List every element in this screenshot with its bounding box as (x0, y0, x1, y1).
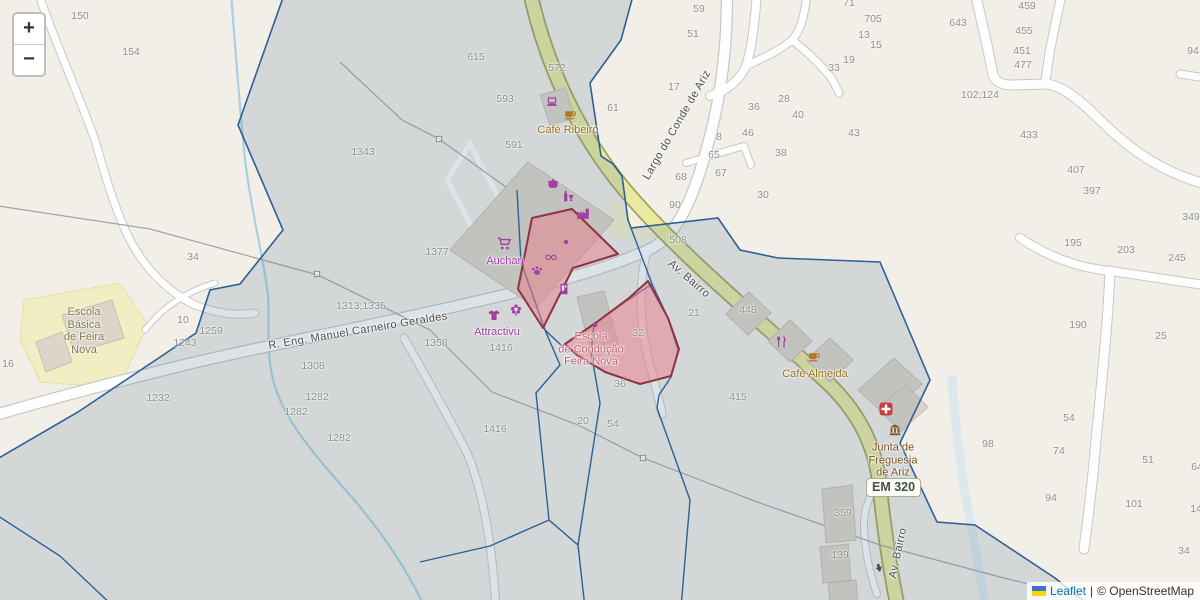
house-number: 1313;1335 (336, 300, 386, 312)
house-number: 705 (864, 13, 882, 25)
house-number: 349 (1182, 211, 1200, 223)
house-number: 25 (1155, 330, 1167, 342)
house-number: 1282 (327, 432, 350, 444)
cart-icon (497, 236, 512, 251)
house-number: 21 (688, 307, 700, 319)
glasses-icon (545, 251, 558, 264)
poi-label: Café Almeida (782, 368, 847, 381)
house-number: 459 (1018, 0, 1036, 12)
vending-icon (558, 283, 571, 296)
house-number: 1243 (173, 337, 196, 349)
house-number: 54 (607, 418, 619, 430)
pylon-icon (313, 270, 322, 279)
poi-label: Escolade ConduçãoFeira Nova (558, 330, 623, 368)
house-number: 1416 (483, 423, 506, 435)
house-number: 451 (1013, 45, 1031, 57)
house-number: 51 (1142, 454, 1154, 466)
dot-icon (591, 321, 599, 329)
house-number: 455 (1015, 25, 1033, 37)
tshirt-icon (488, 309, 501, 322)
pylon-icon (639, 454, 648, 463)
house-number: 245 (1168, 252, 1186, 264)
house-number: 477 (1014, 59, 1032, 71)
route-shield: EM 320 (866, 478, 921, 497)
house-number: 593 (496, 93, 514, 105)
house-number: 10 (177, 314, 189, 326)
house-number: 90 (669, 199, 681, 211)
house-number: 98 (982, 438, 994, 450)
osm-attribution-link[interactable]: © OpenStreetMap (1097, 584, 1194, 598)
pot-icon (547, 177, 560, 190)
house-number: 397 (1083, 185, 1101, 197)
ukraine-flag-icon (1032, 586, 1046, 596)
house-number: 1282 (284, 406, 307, 418)
house-number: 13 (858, 29, 870, 41)
house-number: 34 (187, 251, 199, 263)
house-number: 32 (632, 327, 644, 339)
arrow-icon (872, 561, 885, 574)
medical-icon (879, 402, 894, 417)
poi-label: EscolaBásicade FeiraNova (64, 306, 104, 356)
flower-icon (509, 303, 523, 317)
house-number: 65 (708, 149, 720, 161)
house-number: 64 (1191, 461, 1200, 473)
poi-label: Junta deFreguesiade Ariz (869, 441, 918, 479)
house-number: 59 (693, 3, 705, 15)
house-number: 203 (1117, 244, 1135, 256)
house-number: 154 (122, 46, 140, 58)
townhall-icon (889, 424, 902, 437)
house-number: 40 (792, 109, 804, 121)
house-number: 68 (675, 171, 687, 183)
poi-label: Café Ribeiro (537, 124, 598, 137)
house-number: 1308 (301, 360, 324, 372)
house-number: 615 (467, 51, 485, 63)
house-number: 407 (1067, 164, 1085, 176)
pylon-icon (435, 135, 444, 144)
house-number: 1377 (425, 246, 448, 258)
house-number: 1259 (199, 325, 222, 337)
labels-layer: 1501541343346155725935916117595171705131… (0, 0, 1200, 600)
laptop-icon (546, 96, 559, 109)
attribution-separator: | (1090, 584, 1093, 598)
house-number: 15 (870, 39, 882, 51)
house-number: 190 (1069, 319, 1087, 331)
house-number: 1343 (351, 146, 374, 158)
house-number: 54 (1063, 412, 1075, 424)
house-number: 71 (843, 0, 855, 9)
house-number: 34 (1178, 545, 1190, 557)
house-number: 141 (1190, 503, 1200, 515)
house-number: 1232 (146, 392, 169, 404)
leaflet-link[interactable]: Leaflet (1050, 584, 1086, 598)
street-label: Av. Bairro (666, 258, 713, 301)
house-number: 195 (1064, 237, 1082, 249)
drinks-icon (562, 190, 575, 203)
zoom-control: + − (12, 12, 46, 77)
house-number: 591 (505, 139, 523, 151)
house-number: 643 (949, 17, 967, 29)
house-number: 508 (669, 234, 687, 246)
house-number: 61 (607, 102, 619, 114)
house-number: 51 (687, 28, 699, 40)
zoom-in-button[interactable]: + (14, 14, 44, 45)
house-number: 139 (831, 549, 849, 561)
house-number: 67 (715, 167, 727, 179)
house-number: 150 (71, 10, 89, 22)
factory-icon (576, 206, 590, 220)
coffee-icon (564, 108, 577, 121)
paw-icon (531, 264, 544, 277)
map-canvas[interactable]: 1501541343346155725935916117595171705131… (0, 0, 1200, 600)
house-number: 17 (668, 81, 680, 93)
house-number: 36 (614, 378, 626, 390)
house-number: 359 (834, 507, 852, 519)
house-number: 415 (729, 391, 747, 403)
dot-icon (562, 238, 570, 246)
house-number: 8 (716, 131, 722, 143)
house-number: 102;124 (961, 89, 999, 101)
attribution-bar: Leaflet | © OpenStreetMap (1027, 582, 1200, 600)
house-number: 1282 (305, 391, 328, 403)
zoom-out-button[interactable]: − (14, 45, 44, 75)
cutlery-icon (775, 336, 788, 349)
coffee-icon (808, 350, 821, 363)
house-number: 433 (1020, 129, 1038, 141)
house-number: 94 (1187, 45, 1199, 57)
house-number: 1358 (424, 337, 447, 349)
poi-label: Attractivu (474, 326, 520, 339)
house-number: 101 (1125, 498, 1143, 510)
house-number: 36 (748, 101, 760, 113)
house-number: 448 (739, 304, 757, 316)
house-number: 43 (848, 127, 860, 139)
house-number: 28 (778, 93, 790, 105)
street-label: R. Eng. Manuel Carneiro Geraldes (267, 310, 448, 352)
house-number: 19 (843, 54, 855, 66)
house-number: 572 (548, 62, 566, 74)
house-number: 30 (757, 189, 769, 201)
poi-label: Auchan (486, 255, 523, 268)
street-label: Av. Bairro (887, 527, 909, 580)
house-number: 38 (775, 147, 787, 159)
house-number: 33 (828, 62, 840, 74)
house-number: 74 (1053, 445, 1065, 457)
house-number: 1416 (489, 342, 512, 354)
house-number: 46 (742, 127, 754, 139)
house-number: 16 (2, 358, 14, 370)
house-number: 20 (577, 415, 589, 427)
house-number: 94 (1045, 492, 1057, 504)
